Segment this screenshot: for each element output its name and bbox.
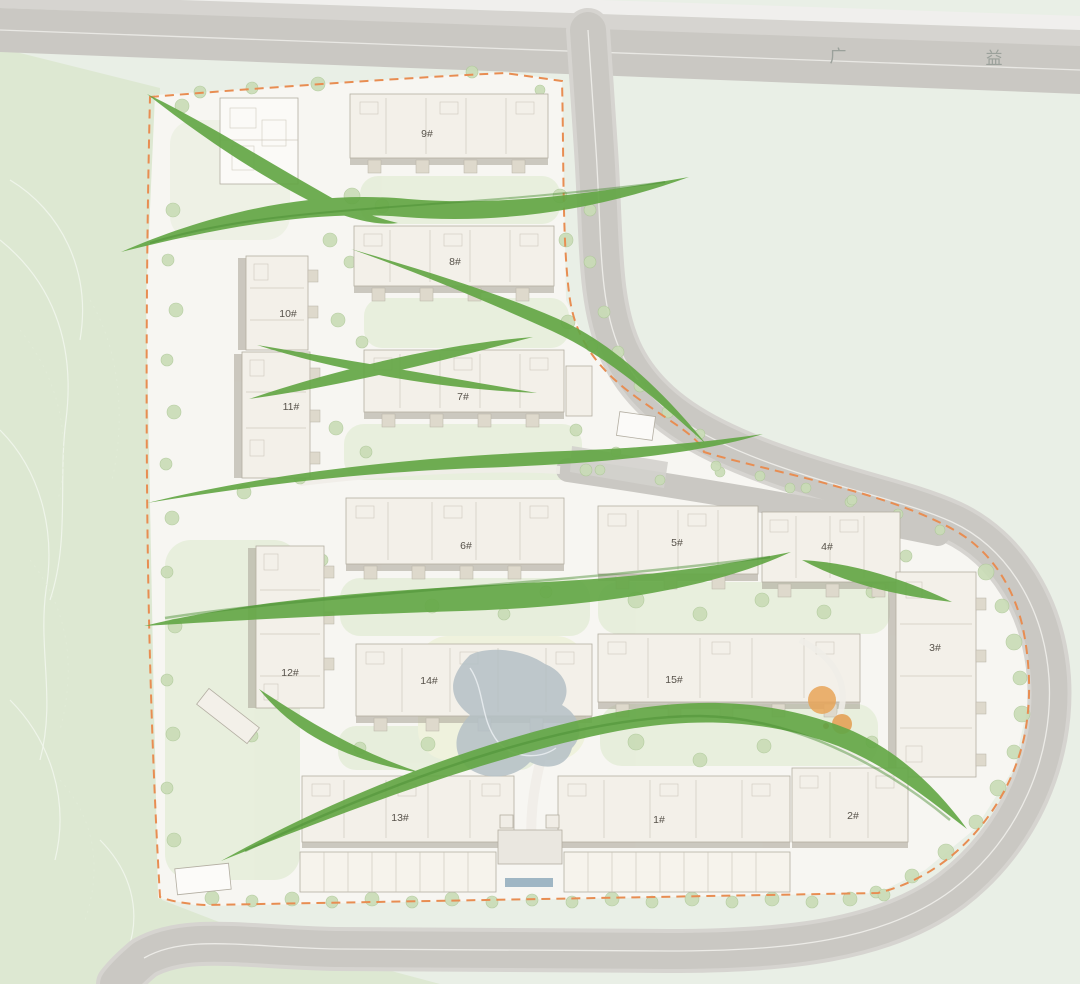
site-plan-page: 9# 8# xyxy=(0,0,1080,984)
gate-canopy xyxy=(505,878,553,887)
building-10: 10# xyxy=(246,256,318,350)
building-label: 2# xyxy=(847,810,859,822)
building-1: 1# xyxy=(558,776,790,842)
gatehouse-north xyxy=(617,412,656,441)
road-name-char-left: 广 xyxy=(830,47,847,66)
building-label: 6# xyxy=(460,540,472,552)
building-label: 12# xyxy=(281,667,299,679)
building-11: 11# xyxy=(242,352,320,478)
road-name-char-right: 益 xyxy=(986,49,1003,68)
building-label: 7# xyxy=(457,391,469,403)
gatehouse-southwest xyxy=(175,863,231,895)
building-label: 5# xyxy=(671,537,683,549)
building-label: 1# xyxy=(653,814,665,826)
building-label: 11# xyxy=(283,401,300,413)
building-label: 15# xyxy=(665,674,683,686)
building-label: 3# xyxy=(929,642,941,654)
building-3: 3# xyxy=(896,572,986,777)
building-label: 10# xyxy=(279,308,297,320)
site-plan-canvas: 9# 8# xyxy=(0,0,1080,984)
building-label: 9# xyxy=(421,128,433,140)
building-label: 4# xyxy=(821,541,833,553)
building-label: 14# xyxy=(420,675,438,687)
building-2: 2# xyxy=(792,768,908,842)
building-label: 13# xyxy=(391,812,409,824)
building-label: 8# xyxy=(449,256,461,268)
